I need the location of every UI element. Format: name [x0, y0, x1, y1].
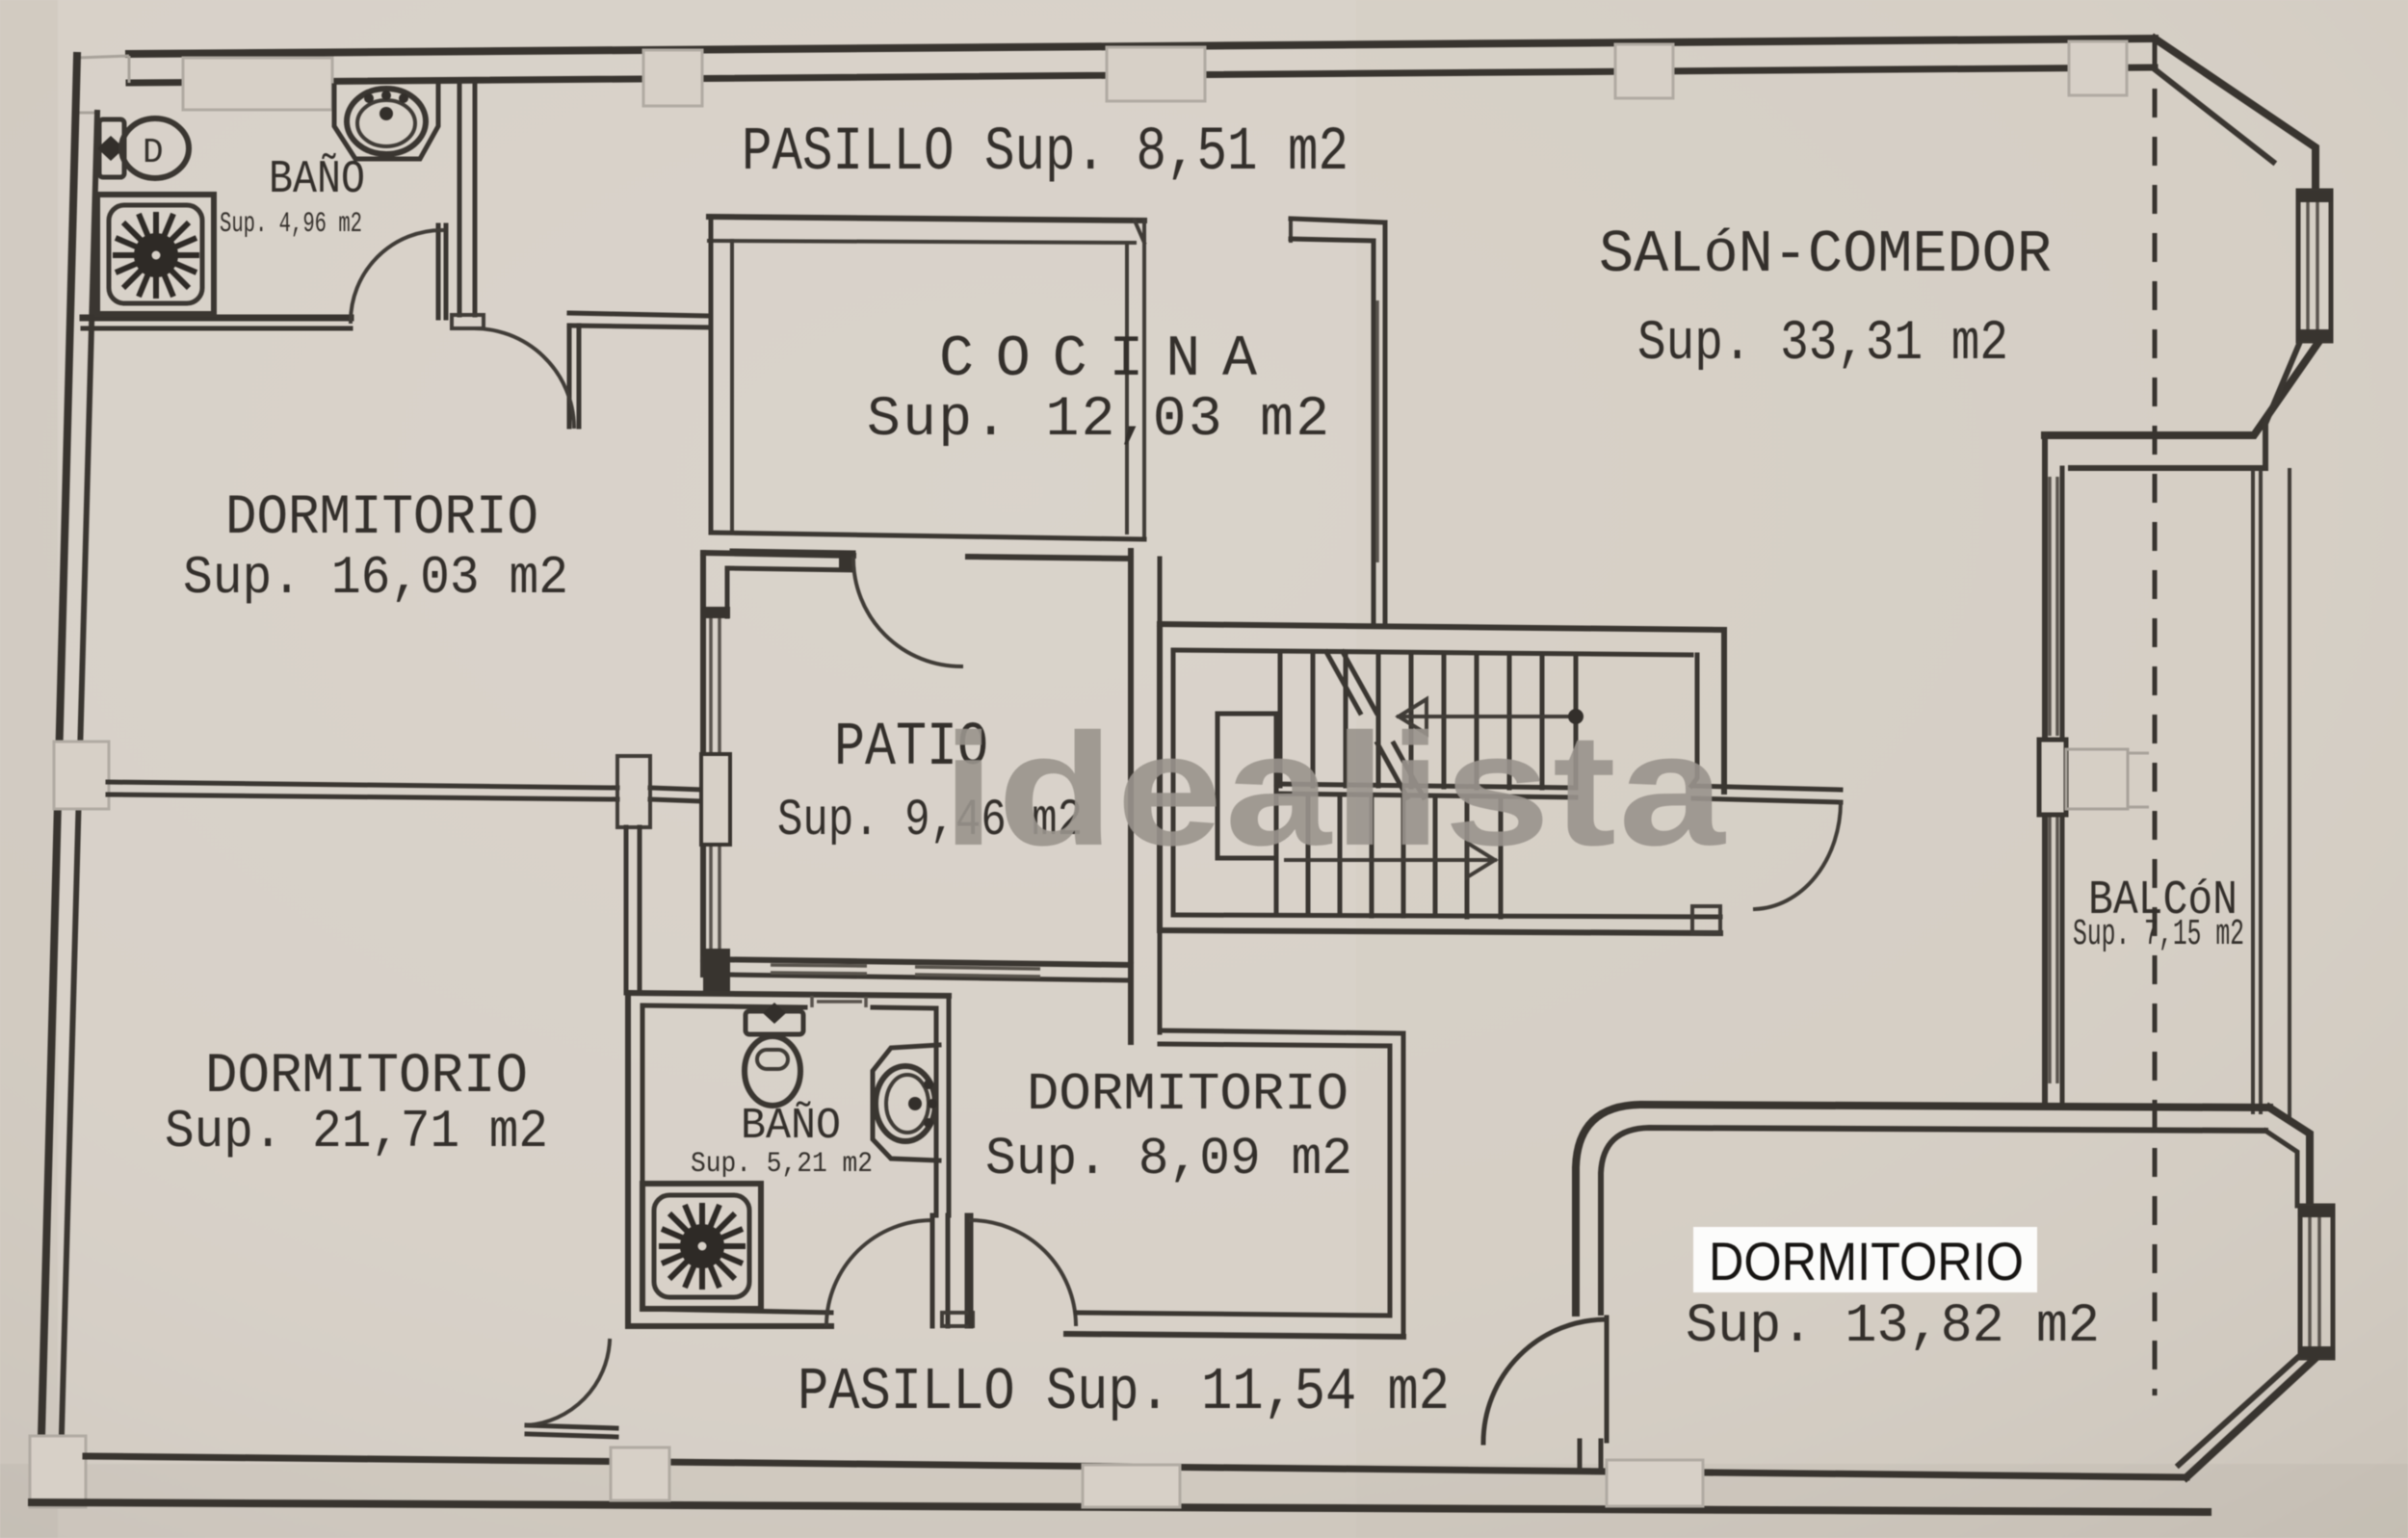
svg-text:BAÑO: BAÑO — [269, 153, 365, 206]
svg-text:Sup. 16,03 m2: Sup. 16,03 m2 — [183, 547, 568, 609]
svg-text:Sup. 4,96 m2: Sup. 4,96 m2 — [220, 208, 362, 241]
svg-text:DORMITORIO: DORMITORIO — [1027, 1064, 1348, 1125]
svg-text:PASILLO Sup. 11,54 m2: PASILLO Sup. 11,54 m2 — [798, 1358, 1450, 1426]
svg-text:DORMITORIO: DORMITORIO — [1709, 1231, 2024, 1291]
svg-text:Sup. 5,21 m2: Sup. 5,21 m2 — [691, 1148, 873, 1181]
svg-text:SALóN-COMEDOR: SALóN-COMEDOR — [1599, 221, 2052, 289]
svg-text:D: D — [143, 133, 164, 172]
svg-text:DORMITORIO: DORMITORIO — [205, 1046, 528, 1108]
svg-text:Sup. 33,31 m2: Sup. 33,31 m2 — [1637, 313, 2008, 376]
svg-text:Sup. 7,15 m2: Sup. 7,15 m2 — [2073, 914, 2244, 955]
svg-text:Sup. 8,09 m2: Sup. 8,09 m2 — [985, 1129, 1352, 1189]
svg-text:BAÑO: BAÑO — [741, 1102, 841, 1151]
svg-text:Sup. 13,82 m2: Sup. 13,82 m2 — [1686, 1296, 2100, 1358]
svg-text:Sup. 21,71 m2: Sup. 21,71 m2 — [165, 1101, 548, 1162]
svg-text:PASILLO Sup. 8,51 m2: PASILLO Sup. 8,51 m2 — [742, 118, 1348, 188]
svg-text:idealista: idealista — [942, 701, 1727, 879]
svg-text:DORMITORIO: DORMITORIO — [225, 487, 538, 550]
